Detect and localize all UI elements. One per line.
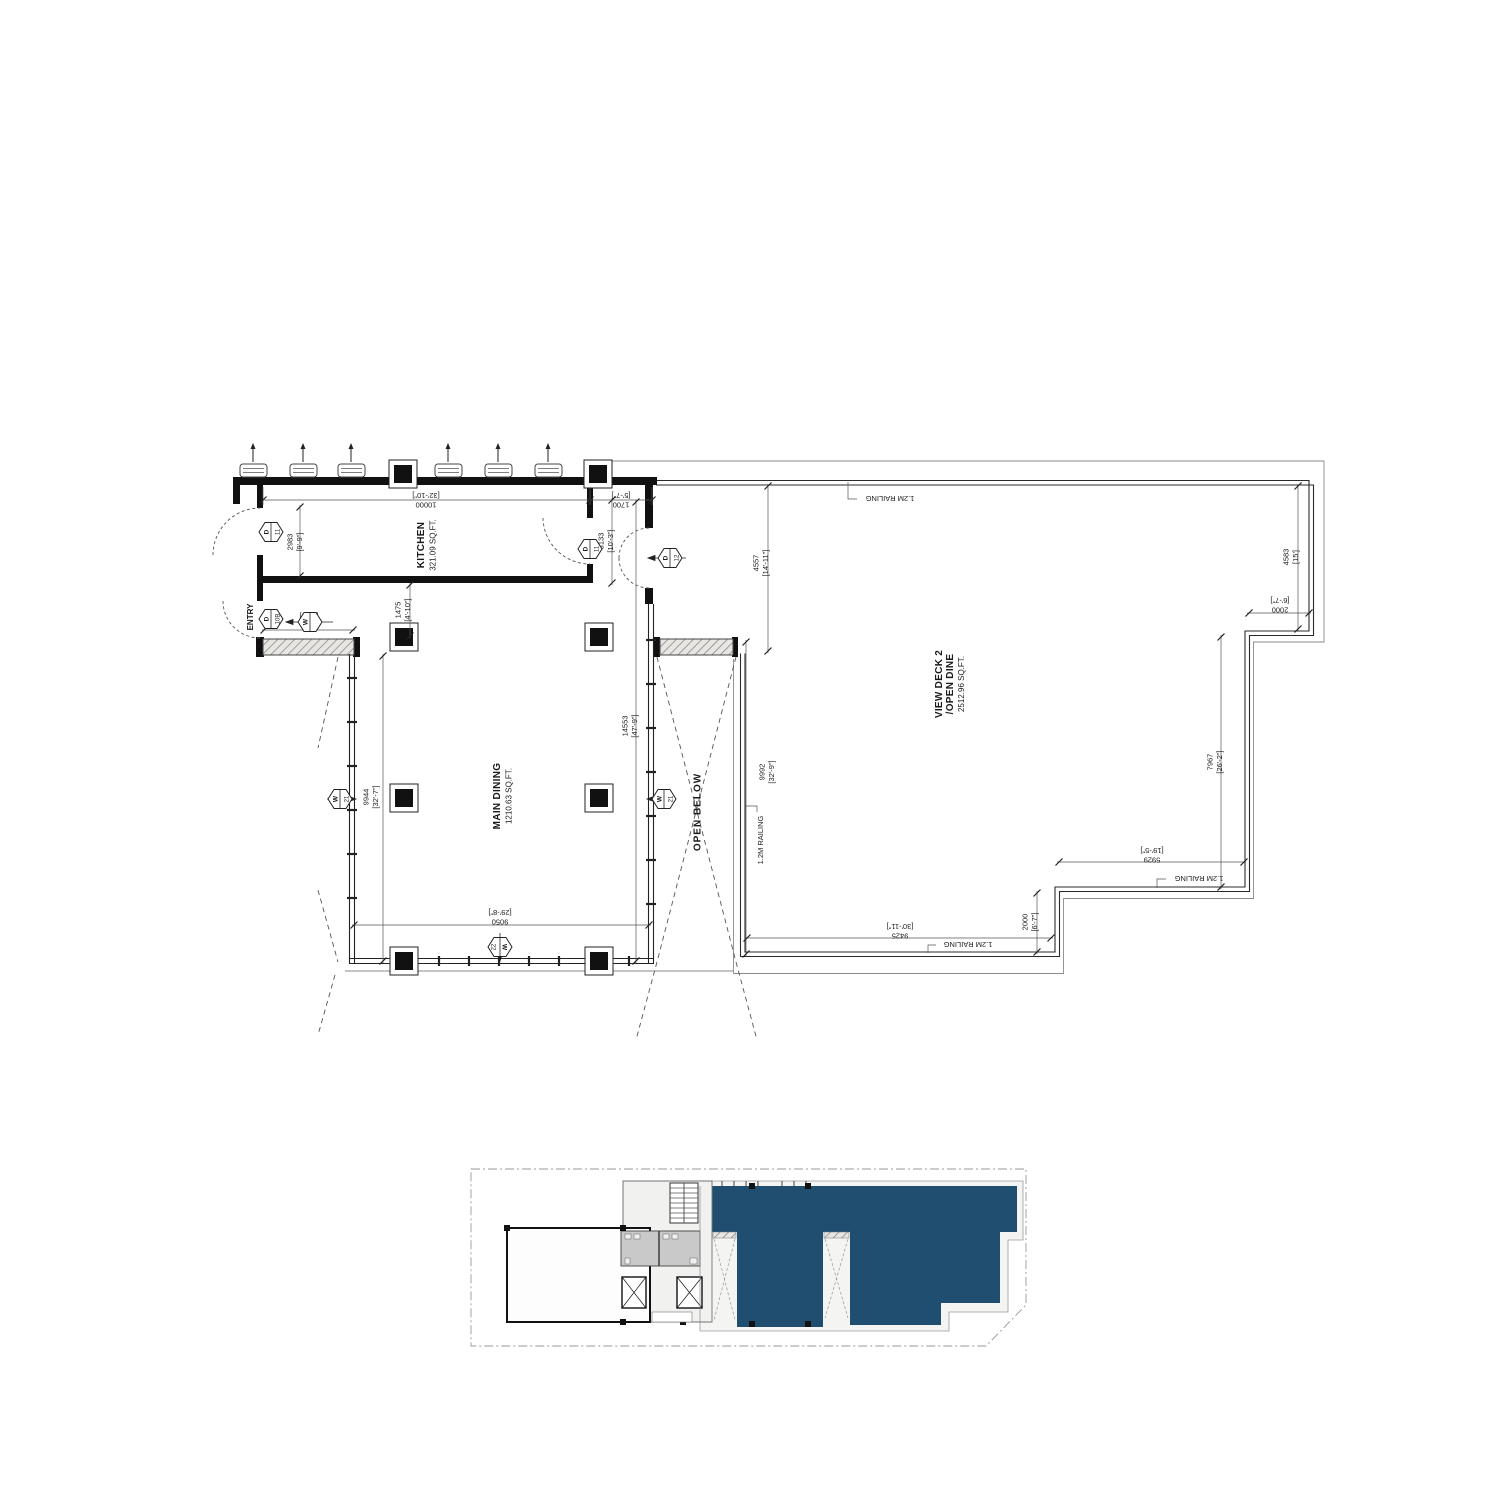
room-label-main-dining: MAIN DINING 1210.63 SQ.FT. xyxy=(492,763,514,830)
dim-ft: [19'-5"] xyxy=(1140,846,1163,855)
tag-number: 11 xyxy=(276,528,282,535)
tag-letter: D xyxy=(264,616,271,621)
planter-bands xyxy=(263,639,733,655)
tag-number: 21 xyxy=(669,795,675,802)
dim-ft: [32'-10"] xyxy=(412,491,439,500)
dim-9944: 9944 [32'-7"] xyxy=(362,785,381,808)
railing-label-bottom: 1.2M RAILING xyxy=(943,940,992,949)
dim-mm: 14553 xyxy=(621,716,630,737)
tag-letter: W xyxy=(303,618,310,625)
dim-ft: [14'-11"] xyxy=(761,550,770,577)
dim-ft: [4'-10"] xyxy=(403,598,412,621)
entry-label: ENTRY xyxy=(246,603,255,630)
dim-mm: 2000 xyxy=(1021,914,1030,931)
main-plan: 10000 [32'-10"] 1700 [5'-7"] 2983 [9'-9"… xyxy=(213,443,1324,1040)
dim-ft: [10'-3"] xyxy=(606,529,615,552)
room-name: KITCHEN xyxy=(416,522,427,569)
tag-number: 11 xyxy=(595,545,601,552)
tag-letter: D xyxy=(264,529,271,534)
dim-9050: 9050 [29'-8"] xyxy=(488,908,511,927)
room-name: MAIN DINING xyxy=(492,763,503,830)
highlight-main-dining xyxy=(737,1232,823,1327)
dim-mm: 9050 xyxy=(492,918,509,927)
dim-10000: 10000 [32'-10"] xyxy=(412,491,439,510)
railing-label-top: 1.2M RAILING xyxy=(865,494,914,503)
dim-7967: 7967 [26'-2"] xyxy=(1206,750,1225,773)
door-tag-d12-deck: D 12 xyxy=(658,549,682,568)
dim-2000-bottom: 2000 [6'-7"] xyxy=(1021,912,1040,931)
window-tag-w21-right: W 21 xyxy=(652,790,676,809)
dim-4557: 4557 [14'-11"] xyxy=(752,550,771,577)
tag-leaders xyxy=(286,556,686,962)
highlight-kitchen-band xyxy=(712,1186,1017,1232)
open-below-label: OPEN BELOW xyxy=(693,773,704,851)
dim-mm: 10000 xyxy=(416,501,437,510)
tag-letter: W xyxy=(501,944,508,951)
dim-ft: [9'-9"] xyxy=(295,532,304,551)
dim-mm: 4583 xyxy=(1282,549,1291,566)
tag-letter: D xyxy=(663,555,670,560)
dim-mm: 2983 xyxy=(286,534,295,551)
tag-number: 12 xyxy=(675,554,681,561)
window-tag-w21-left: W 21 xyxy=(328,790,352,809)
dim-mm: 2000 xyxy=(1272,606,1289,615)
railing-leaders xyxy=(746,482,1166,953)
window-tag-w22-bottom: W 22 xyxy=(488,938,512,957)
room-name: VIEW DECK 2 xyxy=(934,650,945,718)
deck-slab-edge xyxy=(345,461,1324,974)
dim-ft: [15'] xyxy=(1291,550,1300,564)
dim-1700: 1700 [5'-7"] xyxy=(611,491,630,510)
stair xyxy=(670,1183,698,1223)
tag-number: 10B xyxy=(276,614,282,625)
tag-number: 21 xyxy=(345,795,351,802)
dim-mm: 1475 xyxy=(394,602,403,619)
dim-2983: 2983 [9'-9"] xyxy=(286,532,305,551)
floor-plan-drawing: 10000 [32'-10"] 1700 [5'-7"] 2983 [9'-9"… xyxy=(0,0,1500,1500)
dim-ft: [6'-7"] xyxy=(1270,596,1289,605)
dim-ft: [5'-7"] xyxy=(611,491,630,500)
dim-4583: 4583 [15'] xyxy=(1282,549,1301,566)
dim-14553: 14553 [47'-9"] xyxy=(621,714,640,737)
door-tag-d11-left: D 11 xyxy=(259,523,283,542)
dim-ft: [32'-9"] xyxy=(767,760,776,783)
dim-mm: 5929 xyxy=(1144,856,1161,865)
dim-5929: 5929 [19'-5"] xyxy=(1140,846,1163,865)
dim-ft: [30'-11"] xyxy=(887,922,914,931)
dim-ft: [6'-7"] xyxy=(1030,912,1039,931)
railing-label-left: 1.2M RAILING xyxy=(756,815,765,864)
dim-9992: 9992 [32'-9"] xyxy=(758,760,777,783)
room-label-kitchen: KITCHEN 321.09 SQ.FT. xyxy=(416,519,438,571)
dim-ft: [47'-9"] xyxy=(630,714,639,737)
tag-letter: D xyxy=(583,546,590,551)
room-area: 1210.63 SQ.FT. xyxy=(505,768,514,824)
vent-arrows xyxy=(251,443,551,462)
tag-letter: W xyxy=(333,795,340,802)
railing-label-right: 1.2M RAILING xyxy=(1174,874,1223,883)
dim-mm: 9992 xyxy=(758,764,767,781)
dim-2000-top: 2000 [6'-7"] xyxy=(1270,596,1289,615)
open-below-cross xyxy=(318,657,757,1040)
tag-letter: W xyxy=(657,795,664,802)
dim-mm: 4557 xyxy=(752,555,761,572)
room-name2: /OPEN DINE xyxy=(945,654,956,715)
floor-plan-sheet: 10000 [32'-10"] 1700 [5'-7"] 2983 [9'-9"… xyxy=(0,0,1500,1500)
dim-mm: 9944 xyxy=(362,789,371,806)
door-tag-d10b-entry: D 10B xyxy=(259,610,283,629)
dim-mm: 1700 xyxy=(613,501,630,510)
deck-railing xyxy=(656,481,1314,957)
dim-mm: 7967 xyxy=(1206,754,1215,771)
tag-number: 22 xyxy=(490,944,496,951)
dim-1475: 1475 [4'-10"] xyxy=(394,598,413,621)
key-plan xyxy=(471,1169,1026,1346)
dim-mm: 9425 xyxy=(892,932,909,941)
room-label-view-deck: VIEW DECK 2 /OPEN DINE 2512.96 SQ.FT. xyxy=(934,650,966,718)
room-area: 2512.96 SQ.FT. xyxy=(957,656,966,712)
room-area: 321.09 SQ.FT. xyxy=(429,519,438,571)
dim-ft: [29'-8"] xyxy=(488,908,511,917)
dim-ft: [26'-2"] xyxy=(1215,750,1224,773)
dim-ft: [32'-7"] xyxy=(371,785,380,808)
toilets xyxy=(621,1231,700,1266)
